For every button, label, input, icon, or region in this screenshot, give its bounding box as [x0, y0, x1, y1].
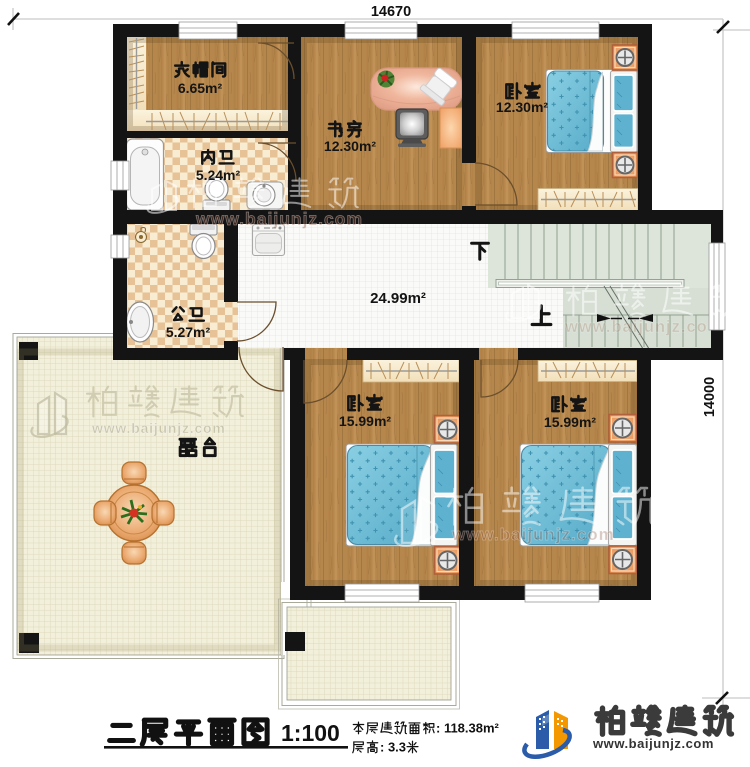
- svg-text:www.baijunjz.co: www.baijunjz.co: [564, 318, 708, 336]
- svg-text:1:100: 1:100: [281, 720, 340, 746]
- svg-text:: 118.38m²: : 118.38m²: [436, 721, 500, 736]
- svg-text:12.30m²: 12.30m²: [324, 138, 376, 154]
- svg-text:: 3.3: : 3.3: [380, 740, 406, 755]
- svg-text:5.24m²: 5.24m²: [196, 167, 241, 183]
- svg-text:www.baijunjz.com: www.baijunjz.com: [592, 736, 714, 751]
- svg-text:12.30m²: 12.30m²: [496, 99, 548, 115]
- svg-text:24.99m²: 24.99m²: [370, 290, 426, 307]
- svg-text:www.baijunjz.com: www.baijunjz.com: [91, 420, 226, 436]
- svg-text:15.99m²: 15.99m²: [339, 413, 391, 429]
- svg-text:www.baijunjz.com: www.baijunjz.com: [195, 209, 363, 229]
- svg-text:15.99m²: 15.99m²: [544, 414, 596, 430]
- svg-text:6.65m²: 6.65m²: [178, 80, 223, 96]
- svg-text:5.27m²: 5.27m²: [166, 324, 211, 340]
- svg-text:www.baijunjz.com: www.baijunjz.com: [451, 525, 615, 544]
- svg-text:14670: 14670: [371, 4, 411, 20]
- svg-text:14000: 14000: [702, 377, 718, 417]
